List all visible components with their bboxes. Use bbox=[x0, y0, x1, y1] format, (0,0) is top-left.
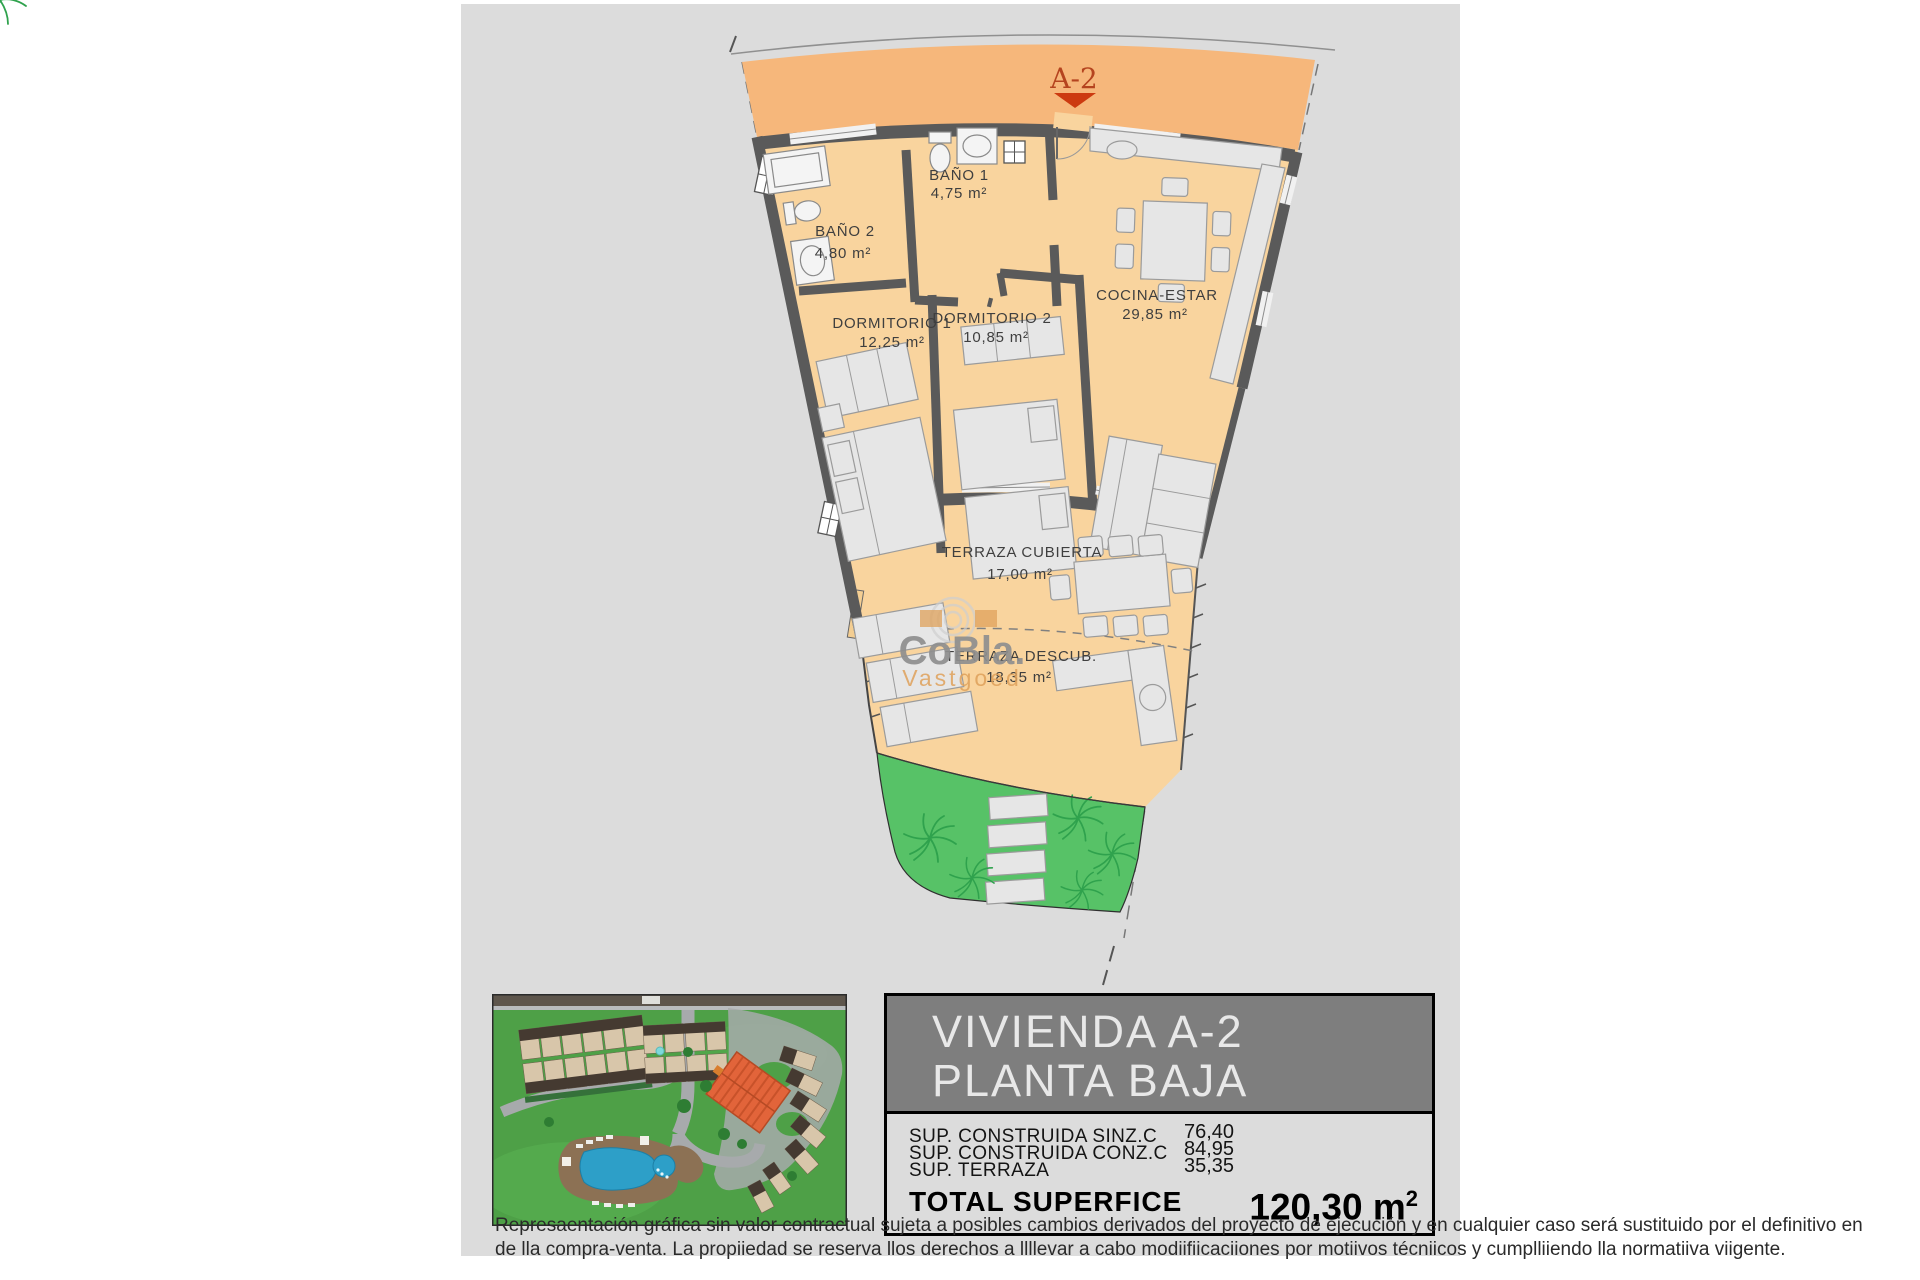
info-box: VIVIENDA A-2 PLANTA BAJA SUP. CONSTRUIDA… bbox=[884, 993, 1435, 1236]
surface-values: 76,40 84,95 35,35 bbox=[1184, 1124, 1234, 1175]
room-area-cocina: 29,85 m² bbox=[1122, 306, 1188, 323]
room-area-terraza-cubierta: 17,00 m² bbox=[987, 566, 1053, 583]
site-plan-image bbox=[492, 994, 847, 1226]
surface-row-value: 35,35 bbox=[1184, 1158, 1234, 1175]
room-label-dormitorio2: DORMITORIO 2 bbox=[932, 310, 1051, 327]
disclaimer: Represaentación gráfica sin valor contra… bbox=[495, 1214, 1505, 1262]
shaft-block bbox=[1004, 141, 1025, 163]
surface-row-label: SUP. TERRAZA bbox=[909, 1162, 1168, 1179]
total-surface-label: TOTAL SUPERFICE bbox=[909, 1186, 1182, 1217]
room-area-bano2: 4,80 m² bbox=[815, 245, 871, 262]
room-area-bano1: 4,75 m² bbox=[931, 185, 987, 202]
surface-labels: SUP. CONSTRUIDA SINZ.C SUP. CONSTRUIDA C… bbox=[909, 1128, 1168, 1179]
cyan-marker bbox=[656, 1047, 664, 1055]
car bbox=[642, 996, 660, 1004]
unit-marker-text: A-2 bbox=[1049, 62, 1098, 95]
room-label-bano2: BAÑO 2 bbox=[815, 223, 875, 240]
watermark-sub: Vastgoed bbox=[902, 665, 1021, 691]
road bbox=[492, 994, 847, 1006]
disclaimer-line1: Represaentación gráfica sin valor contra… bbox=[495, 1214, 1505, 1238]
page: BAÑO 1 4,75 m² BAÑO 2 4,80 m² DORMITORIO… bbox=[0, 0, 1920, 1280]
unit-title-line1: VIVIENDA A-2 bbox=[932, 1007, 1432, 1056]
unit-title-line2: PLANTA BAJA bbox=[932, 1056, 1432, 1105]
room-label-bano1: BAÑO 1 bbox=[929, 167, 989, 184]
info-box-header: VIVIENDA A-2 PLANTA BAJA bbox=[887, 996, 1432, 1114]
room-area-dormitorio2: 10,85 m² bbox=[963, 329, 1029, 346]
disclaimer-line2: de lla compra-venta. La propiiedad se re… bbox=[495, 1238, 1505, 1262]
room-label-terraza-cubierta: TERRAZA CUBIERTA bbox=[942, 544, 1103, 561]
room-area-dormitorio1: 12,25 m² bbox=[859, 334, 925, 351]
room-label-cocina: COCINA-ESTAR bbox=[1096, 287, 1218, 304]
